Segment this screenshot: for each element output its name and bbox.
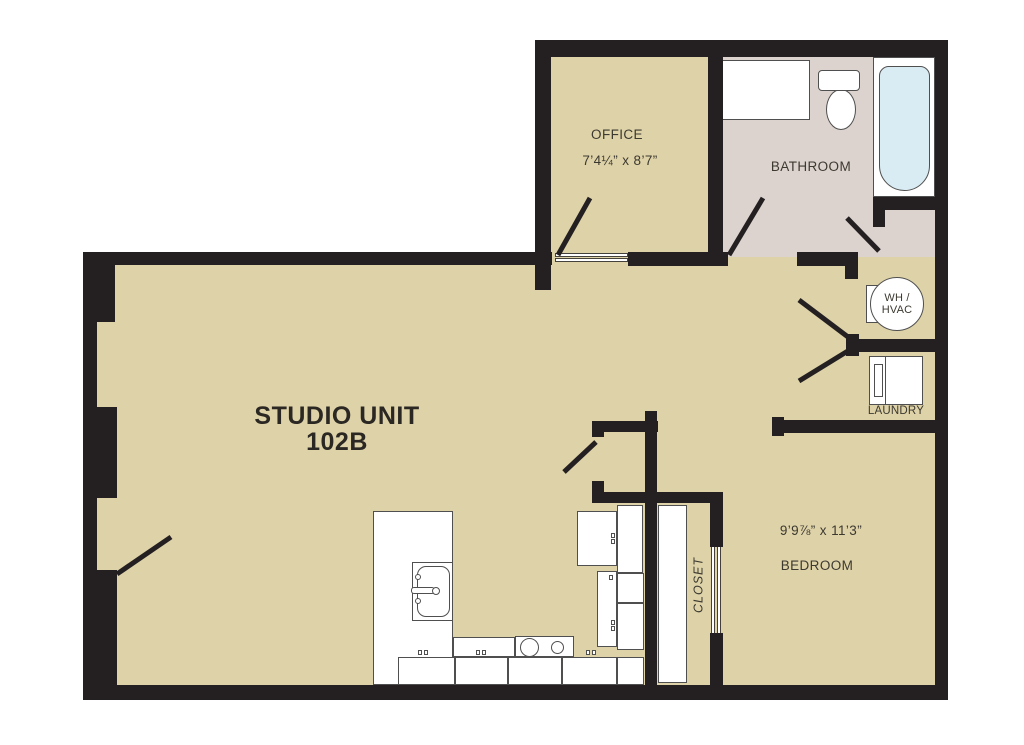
- laundry-label: LAUNDRY: [868, 405, 924, 419]
- base-cabinet: [508, 657, 562, 685]
- cabinet-handle: [424, 650, 428, 655]
- cabinet-handle: [611, 620, 615, 625]
- wall-segment: [535, 40, 948, 57]
- base-cabinet: [398, 657, 455, 685]
- burner-small: [551, 641, 564, 654]
- closet-label: CLOSET: [692, 557, 707, 613]
- wall-segment: [772, 417, 784, 436]
- wall-segment: [710, 633, 723, 690]
- burner-large: [520, 638, 539, 657]
- water-heater-hvac-circle: WH / HVAC: [870, 277, 924, 331]
- wall-segment: [873, 197, 885, 227]
- cabinet-handle: [418, 650, 422, 655]
- office-dimensions: 7’4¼” x 8’7”: [582, 153, 657, 169]
- vanity: [721, 60, 810, 120]
- wall-segment: [708, 57, 723, 257]
- wall-segment: [83, 252, 552, 265]
- closet-sliding-door: [711, 546, 715, 634]
- closet-sliding-door: [717, 546, 721, 634]
- wall-segment: [797, 252, 858, 266]
- wall-segment: [848, 339, 935, 352]
- wall-segment: [845, 266, 858, 279]
- wall-segment: [846, 334, 859, 356]
- toilet-bowl: [826, 89, 856, 130]
- bedroom-label: BEDROOM: [781, 558, 854, 574]
- bedroom-dimensions: 9’9⅞” x 11’3”: [780, 523, 862, 539]
- cabinet-handle: [609, 575, 613, 580]
- counter-band: [597, 571, 617, 647]
- office-label: OFFICE: [591, 127, 643, 143]
- wall-segment: [710, 492, 723, 547]
- closet-shelf: [658, 505, 687, 683]
- floor-plan: WH / HVAC OFFICE 7’4¼” x 8’7” BATHROOM S…: [0, 0, 1024, 745]
- kitchen-faucet-knob: [432, 587, 440, 595]
- toilet-tank: [818, 70, 860, 91]
- unit-title-line2: 102B: [254, 429, 419, 455]
- cabinet-handle: [611, 539, 615, 544]
- office-sliding-door: [555, 258, 628, 262]
- wall-segment: [592, 492, 723, 503]
- wall-segment: [772, 420, 935, 433]
- laundry-machine-door: [874, 364, 883, 397]
- base-cabinet: [562, 657, 617, 685]
- cabinet-handle: [476, 650, 480, 655]
- wall-segment: [83, 498, 97, 570]
- wall-segment: [83, 407, 117, 498]
- unit-title: STUDIO UNIT 102B: [254, 403, 419, 455]
- cabinet-handle: [586, 650, 590, 655]
- base-cabinet: [455, 657, 508, 685]
- wall-segment: [83, 252, 115, 322]
- cabinet-handle: [611, 533, 615, 538]
- office-sliding-door: [555, 253, 628, 257]
- wh-label-line2: HVAC: [882, 304, 913, 317]
- wall-segment: [83, 570, 117, 700]
- base-cabinet: [617, 657, 644, 685]
- wall-segment: [83, 685, 948, 700]
- tall-cabinet: [617, 505, 643, 573]
- wall-segment: [592, 421, 604, 437]
- bathroom-label: BATHROOM: [771, 159, 851, 175]
- kitchen-faucet-dot: [415, 598, 421, 604]
- cabinet-handle: [592, 650, 596, 655]
- bathtub: [879, 66, 930, 191]
- kitchen-faucet-dot: [415, 574, 421, 580]
- wall-segment: [83, 322, 97, 407]
- cabinet-handle: [611, 626, 615, 631]
- wall-cabinet: [617, 573, 644, 603]
- wall-segment: [645, 421, 657, 690]
- wall-segment: [935, 40, 948, 700]
- cabinet-handle: [482, 650, 486, 655]
- studio-floor: [90, 257, 940, 693]
- laundry-machine-divider: [885, 357, 886, 404]
- unit-title-line1: STUDIO UNIT: [254, 403, 419, 429]
- wh-label-line1: WH /: [884, 292, 909, 305]
- wall-segment: [628, 252, 728, 266]
- wall-cabinet: [617, 603, 644, 650]
